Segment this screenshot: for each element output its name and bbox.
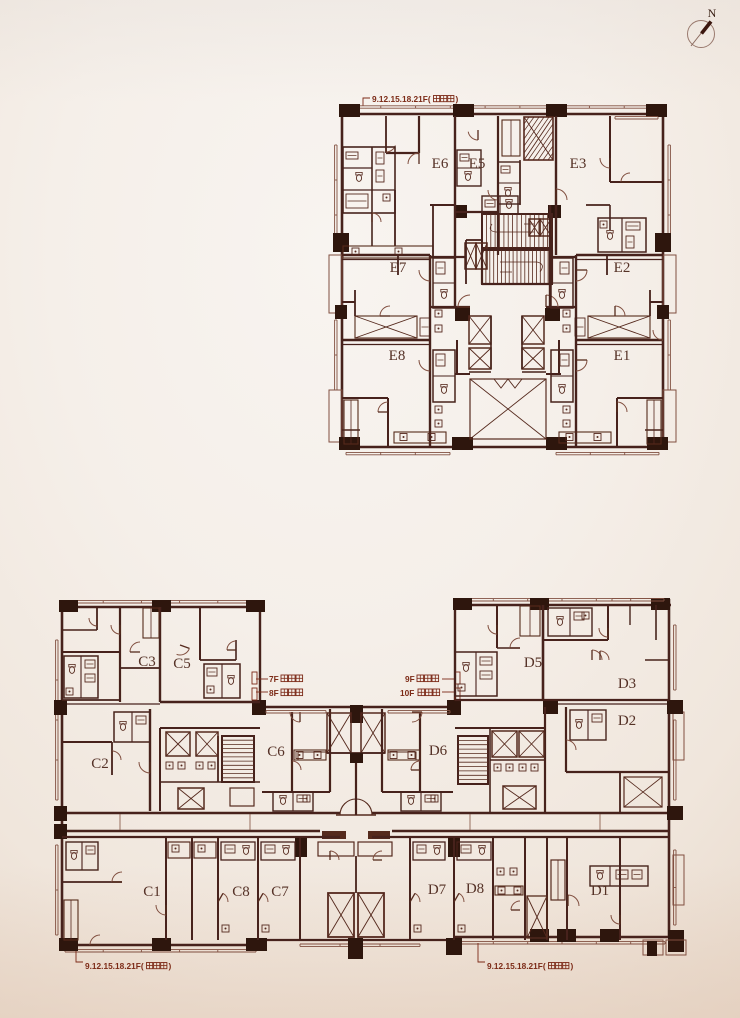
- svg-text:E5: E5: [469, 156, 486, 172]
- svg-text:D6: D6: [429, 743, 448, 759]
- svg-text:9.12.15.18.21F(: 9.12.15.18.21F(: [487, 961, 546, 971]
- svg-text:D1: D1: [591, 883, 609, 899]
- svg-text:E6: E6: [432, 156, 449, 172]
- svg-text:9.12.15.18.21F(: 9.12.15.18.21F(: [85, 961, 144, 971]
- svg-text:): ): [456, 94, 459, 104]
- svg-text:D5: D5: [524, 655, 542, 671]
- svg-text:D3: D3: [618, 676, 636, 692]
- svg-text:E8: E8: [389, 348, 406, 364]
- svg-text:9F: 9F: [405, 674, 415, 684]
- svg-text:D2: D2: [618, 713, 636, 729]
- svg-text:7F: 7F: [269, 674, 279, 684]
- svg-text:): ): [169, 961, 172, 971]
- svg-text:N: N: [708, 6, 717, 20]
- svg-text:E1: E1: [614, 348, 631, 364]
- svg-text:C6: C6: [267, 744, 285, 760]
- svg-text:E3: E3: [570, 156, 587, 172]
- svg-text:E7: E7: [390, 260, 407, 276]
- svg-text:C1: C1: [143, 884, 161, 900]
- svg-text:): ): [571, 961, 574, 971]
- svg-text:D7: D7: [428, 882, 447, 898]
- svg-text:10F: 10F: [400, 688, 414, 698]
- svg-text:8F: 8F: [269, 688, 279, 698]
- svg-text:C7: C7: [271, 884, 289, 900]
- svg-text:E2: E2: [614, 260, 631, 276]
- svg-text:C5: C5: [173, 656, 191, 672]
- svg-text:C3: C3: [138, 654, 156, 670]
- svg-text:D8: D8: [466, 881, 484, 897]
- svg-text:C8: C8: [232, 884, 250, 900]
- svg-text:9.12.15.18.21F(: 9.12.15.18.21F(: [372, 94, 431, 104]
- svg-text:C2: C2: [91, 756, 109, 772]
